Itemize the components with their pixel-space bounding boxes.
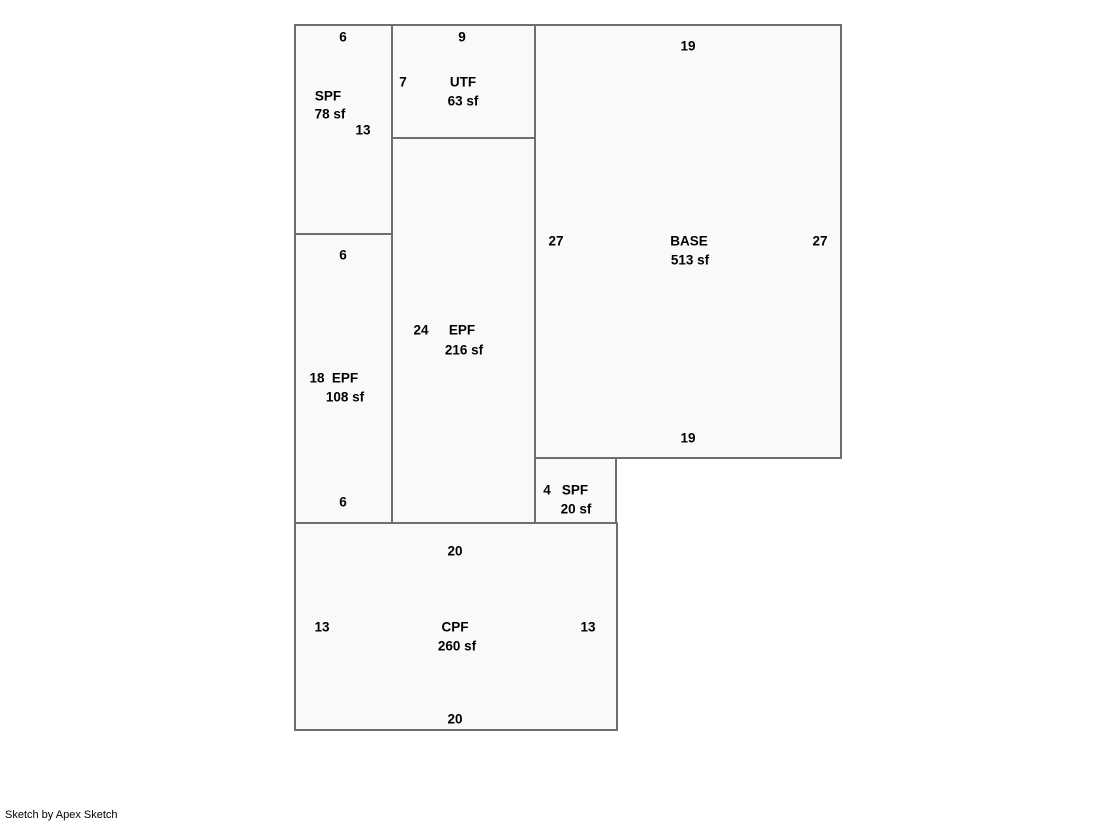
- cpf260-dim-right: 13: [580, 620, 595, 634]
- base513-dim-top: 19: [680, 39, 695, 53]
- cpf260-dim-left: 13: [314, 620, 329, 634]
- utf63-dim-top: 9: [458, 30, 466, 44]
- floor-plan-sketch: 6 SPF 78 sf 13 9 7 UTF 63 sf 19 27 BASE …: [0, 0, 1119, 821]
- sketch-credit: Sketch by Apex Sketch: [5, 809, 118, 821]
- spf78-dim-right: 13: [355, 123, 370, 137]
- epf216-dim-left: 24: [413, 323, 428, 337]
- utf63-room-label: UTF: [450, 75, 476, 89]
- cpf260-area-label: 260 sf: [438, 639, 476, 653]
- utf63-dim-left: 7: [399, 75, 407, 89]
- base513-dim-right: 27: [812, 234, 827, 248]
- epf108-dim-bottom: 6: [339, 495, 347, 509]
- spf78-area-label: 78 sf: [315, 107, 346, 121]
- spf78-dim-top: 6: [339, 30, 347, 44]
- spf20-room-label: SPF: [562, 483, 588, 497]
- epf216-room-label: EPF: [449, 323, 475, 337]
- spf78-room-label: SPF: [315, 89, 341, 103]
- cpf260-dim-bottom: 20: [447, 712, 462, 726]
- epf108-room-label: EPF: [332, 371, 358, 385]
- base513-area-label: 513 sf: [671, 253, 709, 267]
- epf108-dim-left: 18: [309, 371, 324, 385]
- epf108-area-label: 108 sf: [326, 390, 364, 404]
- base513-room-label: BASE: [670, 234, 708, 248]
- cpf260-room-label: CPF: [442, 620, 469, 634]
- spf20-dim-left: 4: [543, 483, 551, 497]
- room-spf78-outline: [294, 24, 393, 235]
- spf20-area-label: 20 sf: [561, 502, 592, 516]
- base513-dim-bottom: 19: [680, 431, 695, 445]
- cpf260-dim-top: 20: [447, 544, 462, 558]
- epf216-area-label: 216 sf: [445, 343, 483, 357]
- utf63-area-label: 63 sf: [448, 94, 479, 108]
- epf108-dim-top: 6: [339, 248, 347, 262]
- base513-dim-left: 27: [548, 234, 563, 248]
